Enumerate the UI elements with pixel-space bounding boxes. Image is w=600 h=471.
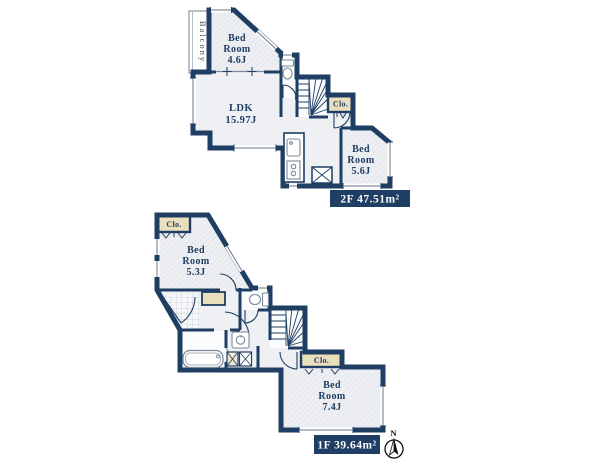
bedroom-4-6-label-1: Bed: [228, 33, 246, 44]
ldk-label-2: 15.97J: [225, 115, 256, 126]
area-label-2f: 2F 47.51m²: [330, 190, 410, 207]
area-label-1f: 1F 39.64m²: [314, 435, 380, 454]
bedroom-5-6-label-1: Bed: [352, 144, 370, 155]
bedroom-5-3-label-3: 5.3J: [186, 267, 205, 278]
bedroom-4-6-label-2: Room: [223, 44, 250, 55]
floor-2f: Balcony: [189, 7, 410, 207]
ldk-label-1: LDK: [229, 103, 253, 114]
bedroom-5-3-label-1: Bed: [187, 245, 205, 256]
floor-plan-image: Balcony: [0, 0, 600, 471]
bedroom-7-4-label-1: Bed: [323, 380, 341, 391]
kitchen-counter: [284, 133, 304, 182]
closet-2f-label: Clo.: [333, 100, 348, 109]
area-label-2f-text: 2F 47.51m²: [340, 194, 399, 206]
area-label-1f-text: 1F 39.64m²: [317, 440, 376, 452]
bathtub: [183, 351, 223, 368]
bedroom-4-6-label-3: 4.6J: [227, 55, 246, 66]
bedroom-5-6-label-3: 5.6J: [351, 166, 370, 177]
bedroom-5-6-label-2: Room: [347, 155, 374, 166]
shoe-cabinet: [202, 292, 225, 305]
bedroom-5-3-label-2: Room: [182, 256, 209, 267]
floor-1f: Clo. Clo. Bed Room 5.3J Bed Room 7.4J 1F…: [155, 215, 404, 458]
balcony: Balcony: [189, 11, 209, 73]
entrance-tile: [160, 294, 200, 329]
closet-1f-a-label: Clo.: [166, 220, 181, 229]
north-label: N: [390, 428, 397, 438]
refrigerator-space: [312, 167, 332, 183]
floor-plan-page: Balcony: [0, 0, 600, 471]
compass-icon: N: [385, 428, 403, 458]
closet-1f-b-label: Clo.: [314, 356, 329, 365]
bedroom-7-4-label-3: 7.4J: [322, 402, 341, 413]
washbasin: [232, 332, 249, 348]
washing-machine-space: [227, 352, 252, 366]
bedroom-7-4-label-2: Room: [318, 391, 345, 402]
